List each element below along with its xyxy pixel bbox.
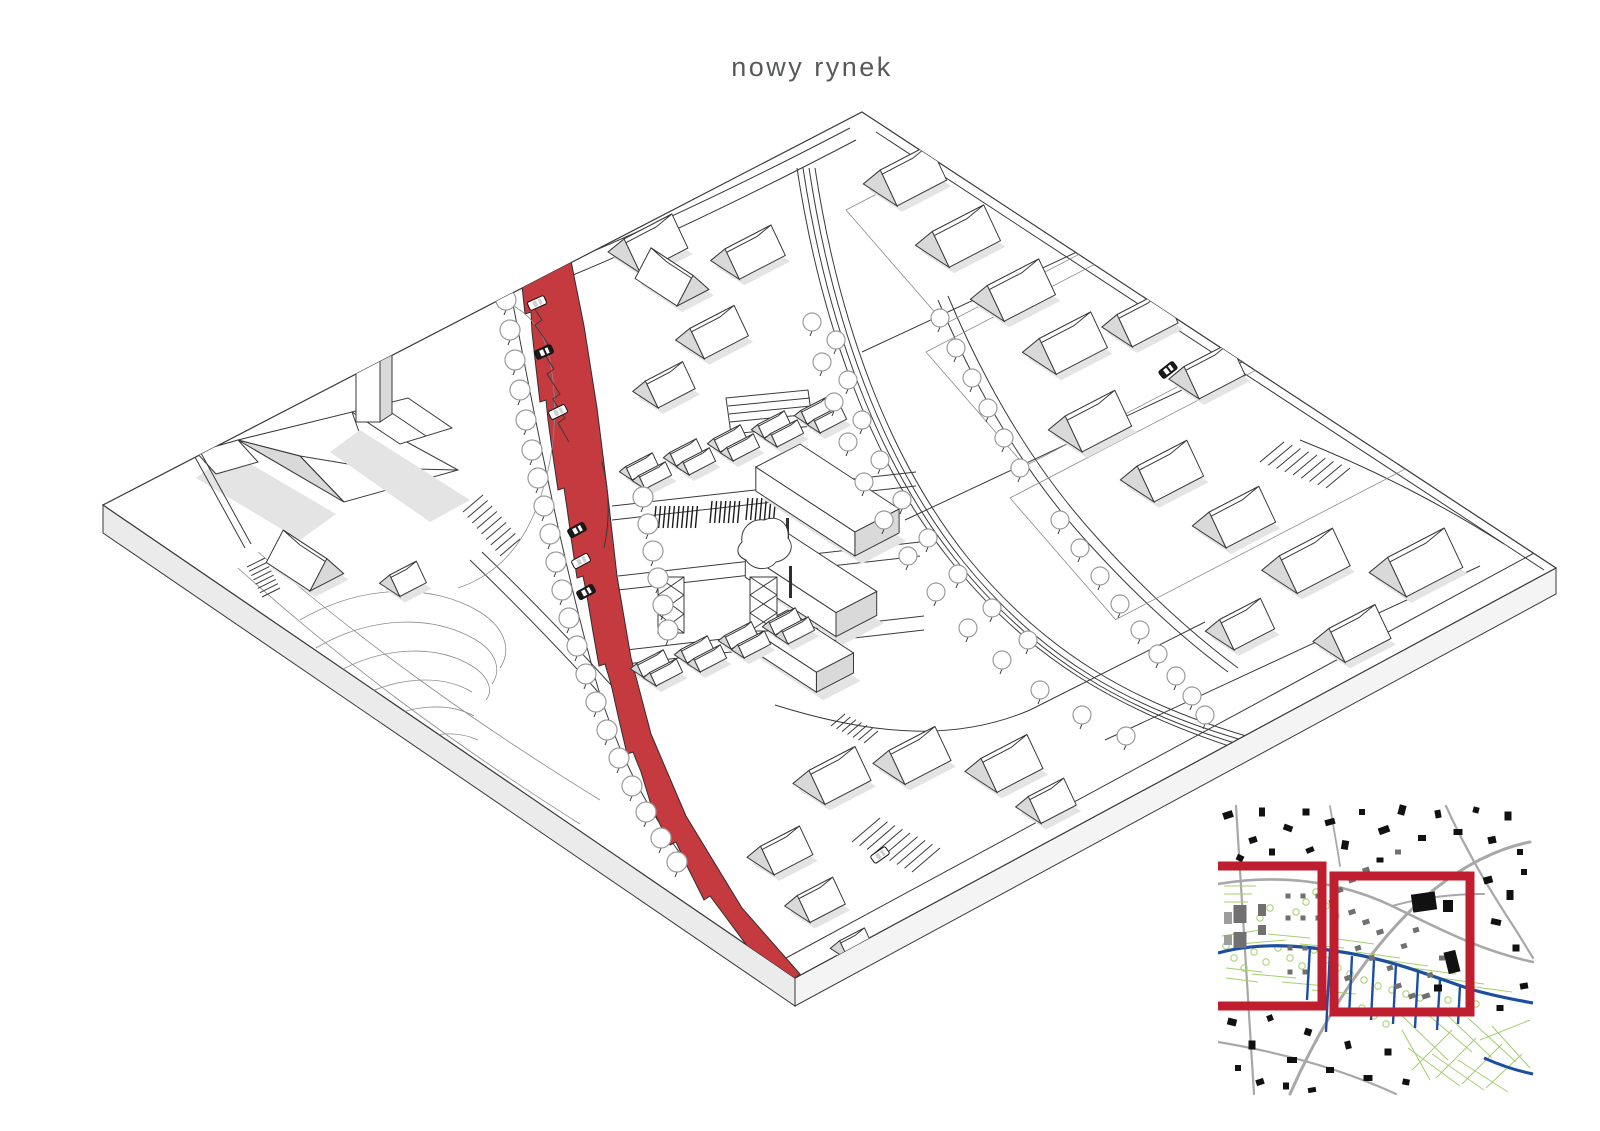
- tree: [636, 802, 656, 822]
- map-building: [1288, 970, 1293, 975]
- map-building: [1287, 1057, 1297, 1063]
- tree: [522, 440, 542, 460]
- tree: [949, 565, 967, 583]
- kiosk: [789, 566, 792, 598]
- tree: [827, 331, 845, 349]
- map-building: [1434, 985, 1442, 992]
- tree: [510, 380, 530, 400]
- tree: [633, 487, 653, 507]
- map-building: [1234, 905, 1247, 923]
- tree: [993, 651, 1011, 669]
- tree: [893, 491, 911, 509]
- tree: [1011, 459, 1029, 477]
- tree: [1196, 706, 1214, 724]
- tree: [853, 411, 871, 429]
- map-building: [1364, 1075, 1373, 1081]
- tree: [653, 595, 673, 615]
- map-building: [1258, 904, 1266, 916]
- tree: [643, 541, 663, 561]
- map-building: [1286, 916, 1291, 921]
- tree: [839, 433, 857, 451]
- map-building: [1454, 829, 1463, 835]
- map-building: [1443, 900, 1453, 912]
- tree: [651, 828, 671, 848]
- tree: [839, 371, 857, 389]
- map-building: [1301, 916, 1306, 921]
- map-building: [1521, 869, 1527, 875]
- tree: [609, 748, 629, 768]
- tree: [1031, 681, 1049, 699]
- tree: [552, 580, 572, 600]
- tree: [597, 720, 617, 740]
- map-building: [1288, 946, 1293, 951]
- axonometric-drawing: [0, 0, 1600, 1131]
- tree: [667, 852, 687, 872]
- map-building: [1439, 956, 1445, 961]
- tree: [1149, 645, 1167, 663]
- tree: [995, 429, 1013, 447]
- tree: [1183, 687, 1201, 705]
- map-building: [1234, 932, 1247, 948]
- tree: [963, 369, 981, 387]
- tree: [875, 511, 893, 529]
- tree: [559, 608, 579, 628]
- tree: [947, 339, 965, 357]
- tree: [927, 583, 945, 601]
- tree: [534, 496, 554, 516]
- tree: [516, 410, 536, 430]
- tree: [983, 599, 1001, 617]
- map-building: [1224, 912, 1232, 924]
- map-building: [1235, 1065, 1241, 1071]
- tree: [855, 473, 873, 491]
- tree: [658, 620, 678, 640]
- tree: [1111, 595, 1129, 613]
- map-building: [1303, 970, 1308, 975]
- tree: [567, 636, 587, 656]
- tree: [500, 320, 520, 340]
- tree: [1167, 667, 1185, 685]
- map-building: [1359, 809, 1365, 815]
- map-building: [1269, 849, 1275, 856]
- map-building: [1497, 1005, 1504, 1011]
- map-building: [1258, 925, 1266, 935]
- map-building: [1418, 835, 1426, 841]
- tree: [1073, 706, 1091, 724]
- tree: [586, 692, 606, 712]
- map-building: [1377, 858, 1384, 863]
- tree: [919, 529, 937, 547]
- map-building: [1517, 849, 1523, 855]
- tree: [622, 776, 642, 796]
- tree: [899, 547, 917, 565]
- tree: [496, 290, 516, 310]
- map-building: [1301, 894, 1306, 899]
- tree: [540, 524, 560, 544]
- tree: [1051, 511, 1069, 529]
- tree: [825, 393, 843, 411]
- map-building: [1249, 1041, 1256, 1050]
- map-building: [1326, 1067, 1334, 1073]
- tree: [1117, 727, 1135, 745]
- map-building: [1224, 935, 1232, 945]
- tree: [1019, 631, 1037, 649]
- tree: [1091, 567, 1109, 585]
- tree: [931, 309, 949, 327]
- tree: [813, 353, 831, 371]
- map-building: [1513, 945, 1520, 952]
- map-building: [1303, 809, 1310, 816]
- map-building: [1395, 850, 1401, 855]
- tree: [979, 399, 997, 417]
- tree: [528, 468, 548, 488]
- poster-page: nowy rynek: [0, 0, 1600, 1131]
- map-building: [1303, 946, 1308, 951]
- location-map-inset: [1198, 800, 1534, 1096]
- tree: [546, 552, 566, 572]
- tree: [1071, 539, 1089, 557]
- map-building: [1286, 894, 1291, 899]
- map-building: [1507, 890, 1514, 900]
- tree: [648, 568, 668, 588]
- map-building: [1505, 812, 1512, 821]
- map-building: [1411, 891, 1437, 912]
- tree: [803, 313, 821, 331]
- map-building: [1283, 1083, 1289, 1090]
- tree: [959, 619, 977, 637]
- tree: [1131, 621, 1149, 639]
- tree: [505, 350, 525, 370]
- tree: [871, 451, 889, 469]
- tree: [576, 664, 596, 684]
- tree: [638, 514, 658, 534]
- map-building: [1259, 808, 1265, 817]
- map-building: [1385, 1049, 1392, 1056]
